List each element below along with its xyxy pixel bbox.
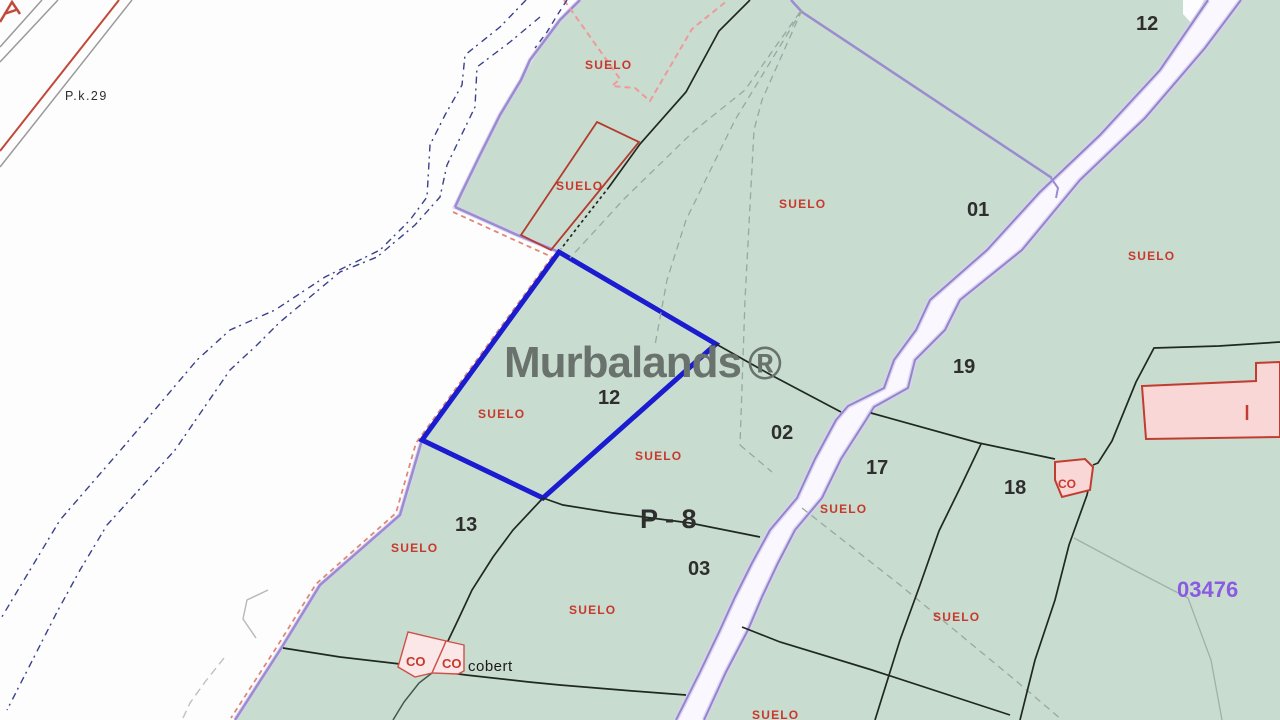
svg-text:SUELO: SUELO bbox=[585, 58, 632, 72]
svg-text:cobert: cobert bbox=[468, 658, 513, 675]
svg-text:®: ® bbox=[748, 337, 782, 389]
svg-text:19: 19 bbox=[953, 356, 975, 378]
svg-text:17: 17 bbox=[866, 457, 888, 479]
svg-text:SUELO: SUELO bbox=[1128, 249, 1175, 263]
svg-text:P - 8: P - 8 bbox=[640, 504, 697, 534]
svg-text:SUELO: SUELO bbox=[752, 708, 799, 720]
svg-text:12: 12 bbox=[1136, 13, 1158, 35]
svg-text:P.k.29: P.k.29 bbox=[65, 89, 108, 103]
svg-text:CO: CO bbox=[442, 656, 462, 671]
svg-text:03476: 03476 bbox=[1177, 577, 1238, 602]
svg-text:13: 13 bbox=[455, 514, 477, 536]
svg-text:SUELO: SUELO bbox=[478, 407, 525, 421]
svg-text:CO: CO bbox=[1058, 477, 1076, 491]
svg-text:SUELO: SUELO bbox=[556, 179, 603, 193]
svg-text:18: 18 bbox=[1004, 477, 1026, 499]
svg-text:SUELO: SUELO bbox=[391, 541, 438, 555]
svg-text:02: 02 bbox=[771, 422, 793, 444]
svg-text:SUELO: SUELO bbox=[933, 610, 980, 624]
svg-text:01: 01 bbox=[967, 199, 989, 221]
svg-text:SUELO: SUELO bbox=[635, 449, 682, 463]
svg-text:Murbalands: Murbalands bbox=[504, 338, 741, 387]
svg-text:SUELO: SUELO bbox=[779, 197, 826, 211]
svg-text:03: 03 bbox=[688, 558, 710, 580]
svg-text:12: 12 bbox=[598, 387, 620, 409]
svg-text:SUELO: SUELO bbox=[820, 502, 867, 516]
svg-text:CO: CO bbox=[406, 654, 426, 669]
svg-text:SUELO: SUELO bbox=[569, 603, 616, 617]
